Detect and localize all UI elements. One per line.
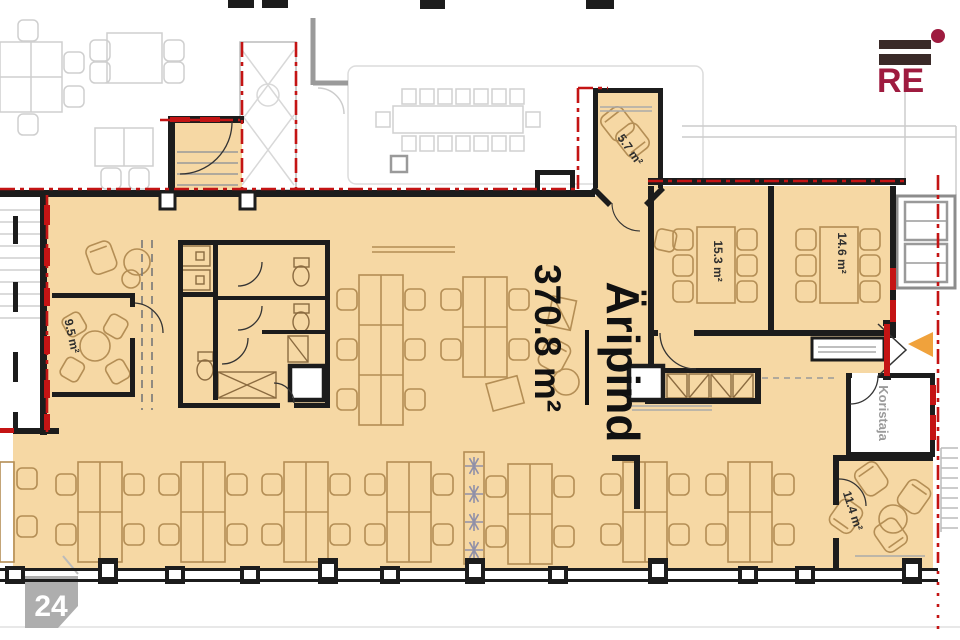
logo-bar-icon bbox=[879, 40, 931, 49]
neighbor-desks bbox=[0, 20, 184, 189]
logo-dot-icon bbox=[931, 29, 945, 43]
room-label-15-3: 15.3 m² bbox=[711, 240, 725, 281]
stairs-right bbox=[941, 448, 958, 532]
room-label-koristaja: Koristaja bbox=[876, 385, 891, 441]
logo-text: RE bbox=[877, 62, 924, 100]
stairs-left bbox=[0, 205, 42, 330]
re-logo: RE bbox=[877, 29, 945, 100]
stair-shaft bbox=[240, 42, 296, 190]
elevators bbox=[897, 196, 955, 288]
room-label-14-6: 14.6 m² bbox=[835, 232, 849, 273]
entrance-arrow-icon bbox=[908, 332, 933, 357]
main-area-label: Äripind bbox=[597, 282, 649, 443]
main-area-value: 370.8 m² bbox=[527, 264, 568, 412]
page-number: 24 bbox=[34, 590, 68, 623]
floor-plan: 24 bbox=[0, 0, 960, 640]
main-label-underline bbox=[585, 330, 589, 405]
floor-plan-page: 24 bbox=[0, 0, 960, 640]
